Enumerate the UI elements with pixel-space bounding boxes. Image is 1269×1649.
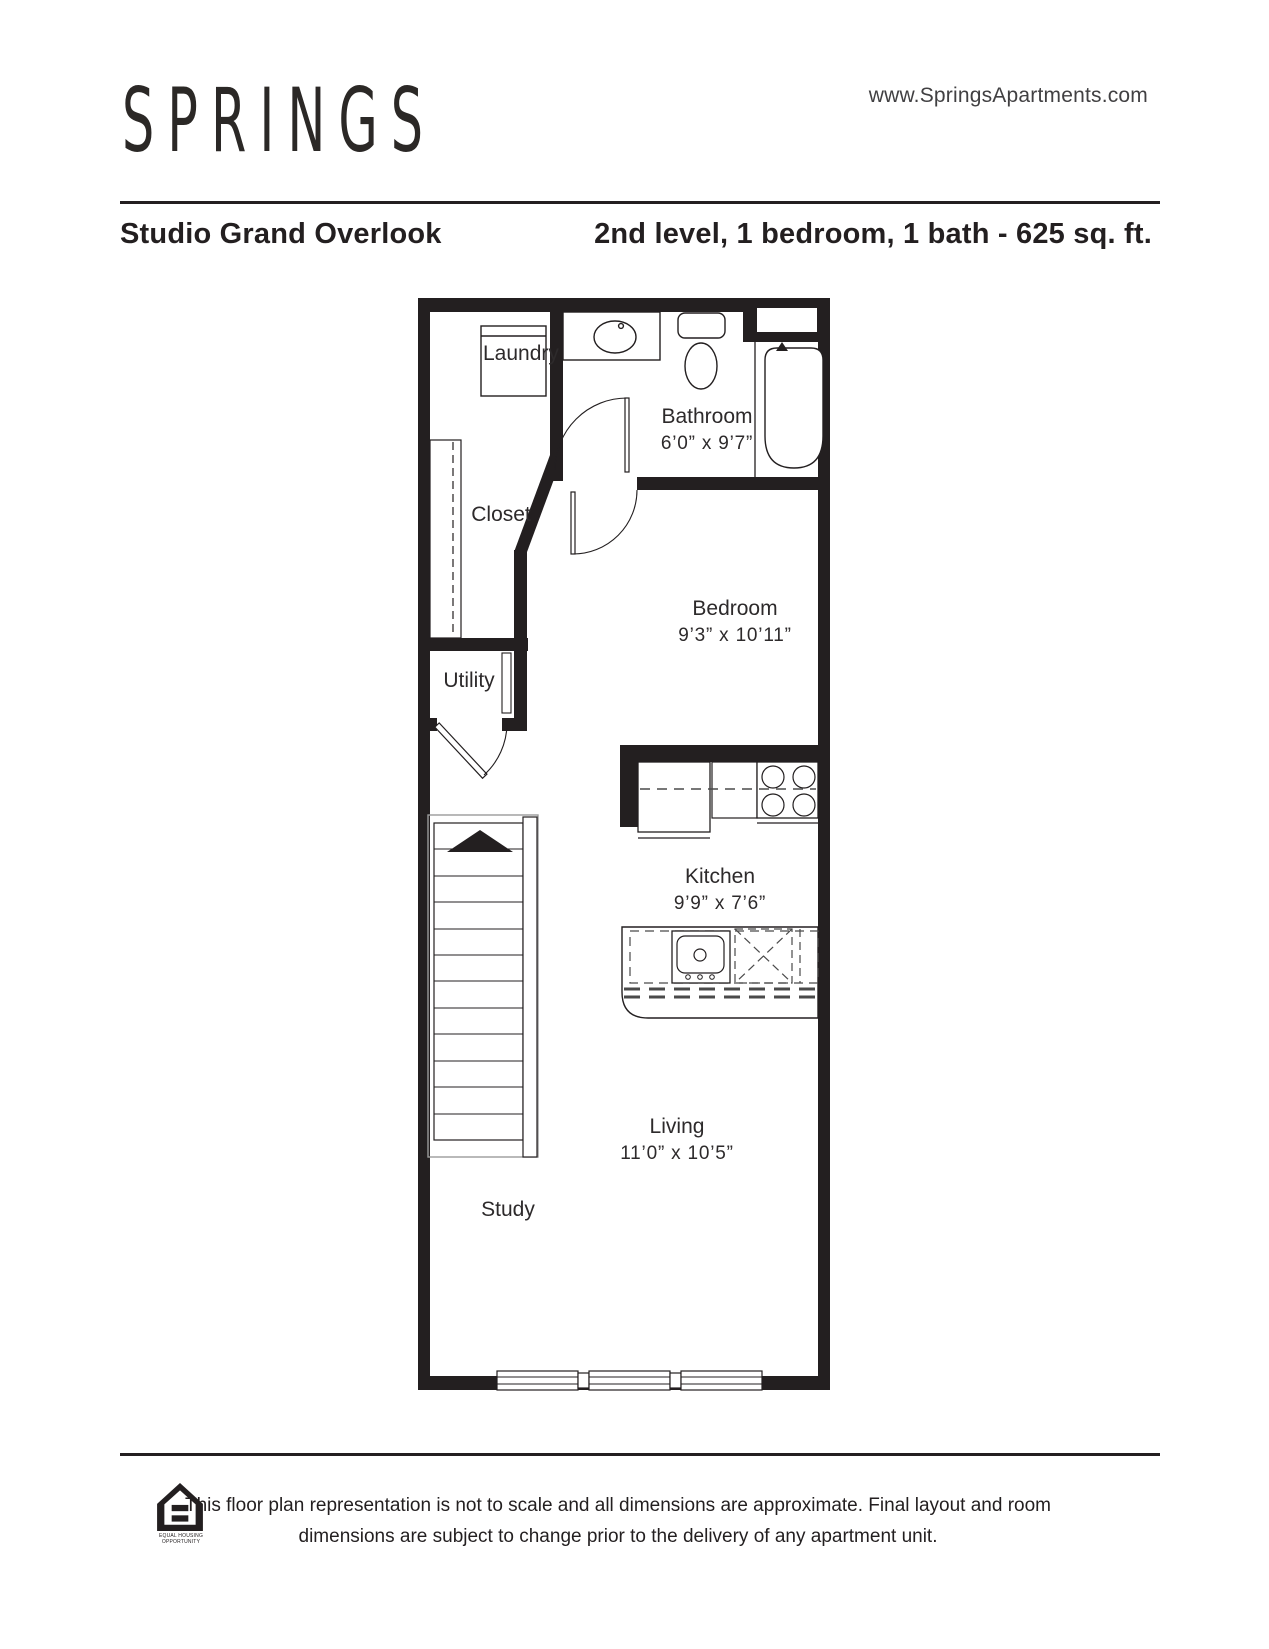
bedroom-label: Bedroom 9’3” x 10’11” [678, 596, 792, 648]
disclaimer-line-1: This floor plan representation is not to… [168, 1490, 1068, 1521]
staircase [428, 815, 538, 1157]
utility-door-frame [502, 653, 511, 713]
bathroom-door [555, 398, 629, 472]
floor-plan-drawing [0, 0, 1269, 1649]
bathtub-icon [765, 342, 823, 468]
study-label: Study [481, 1197, 535, 1222]
kitchen-counter [622, 927, 818, 1018]
refrigerator-icon [638, 762, 710, 838]
disclaimer: This floor plan representation is not to… [168, 1490, 1068, 1552]
utility-label: Utility [443, 668, 494, 693]
laundry-label: Laundry [483, 341, 559, 366]
bedroom-door [571, 490, 637, 554]
floorplan-page: SPRINGS www.SpringsApartments.com Studio… [0, 0, 1269, 1649]
divider-bottom [120, 1453, 1160, 1456]
disclaimer-line-2: dimensions are subject to change prior t… [168, 1521, 1068, 1552]
kitchen-label: Kitchen 9’9” x 7’6” [674, 864, 766, 916]
kitchen-cabinet [712, 762, 757, 818]
toilet-icon [678, 313, 725, 389]
living-windows [497, 1371, 762, 1390]
tub-niche-window [757, 308, 817, 332]
bathroom-label: Bathroom 6’0” x 9’7” [661, 404, 753, 456]
stove-icon [757, 762, 818, 823]
stair-railing [523, 817, 537, 1157]
kitchen-sink-icon [672, 931, 730, 983]
bathroom-sink-icon [563, 312, 660, 360]
closet-label: Closet [471, 502, 531, 527]
utility-door [435, 723, 507, 778]
closet-shelf [430, 440, 461, 638]
living-label: Living 11’0” x 10’5” [620, 1114, 734, 1166]
